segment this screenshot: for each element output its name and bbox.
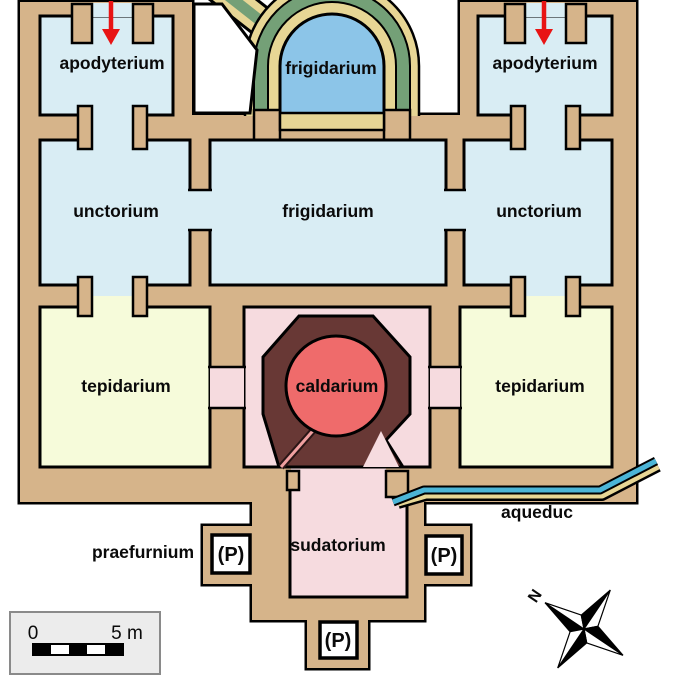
label-apodyterium-right: apodyterium: [492, 53, 597, 73]
compass-north-label: N: [525, 587, 546, 606]
bath-floor-plan: apodyterium apodyterium frigidarium unct…: [0, 0, 700, 700]
scale-end-label: 5 m: [111, 623, 143, 644]
scale-bar: 0 5 m: [10, 612, 160, 674]
label-unctorium-left: unctorium: [73, 201, 159, 221]
label-sudatorium: sudatorium: [290, 535, 385, 555]
pool-pier-right: [384, 110, 410, 140]
label-caldarium: caldarium: [296, 376, 379, 396]
label-tepidarium-left: tepidarium: [81, 376, 170, 396]
label-praefurnium: praefurnium: [92, 542, 194, 562]
label-frigidarium-pool: frigidarium: [285, 58, 376, 78]
label-tepidarium-right: tepidarium: [495, 376, 584, 396]
label-frigidarium-hall: frigidarium: [282, 201, 373, 221]
compass-rose-icon: N: [502, 553, 649, 695]
label-apodyterium-left: apodyterium: [59, 53, 164, 73]
pool-pier-left: [254, 110, 280, 140]
label-p-left: (P): [218, 544, 245, 566]
label-p-right: (P): [431, 545, 458, 567]
floor-plan-svg: apodyterium apodyterium frigidarium unct…: [0, 0, 700, 700]
scale-start-label: 0: [28, 623, 39, 644]
label-p-bottom: (P): [325, 630, 352, 652]
label-unctorium-right: unctorium: [496, 201, 582, 221]
label-aqueduct: aqueduc: [501, 502, 573, 522]
pool-sill: [280, 113, 384, 130]
